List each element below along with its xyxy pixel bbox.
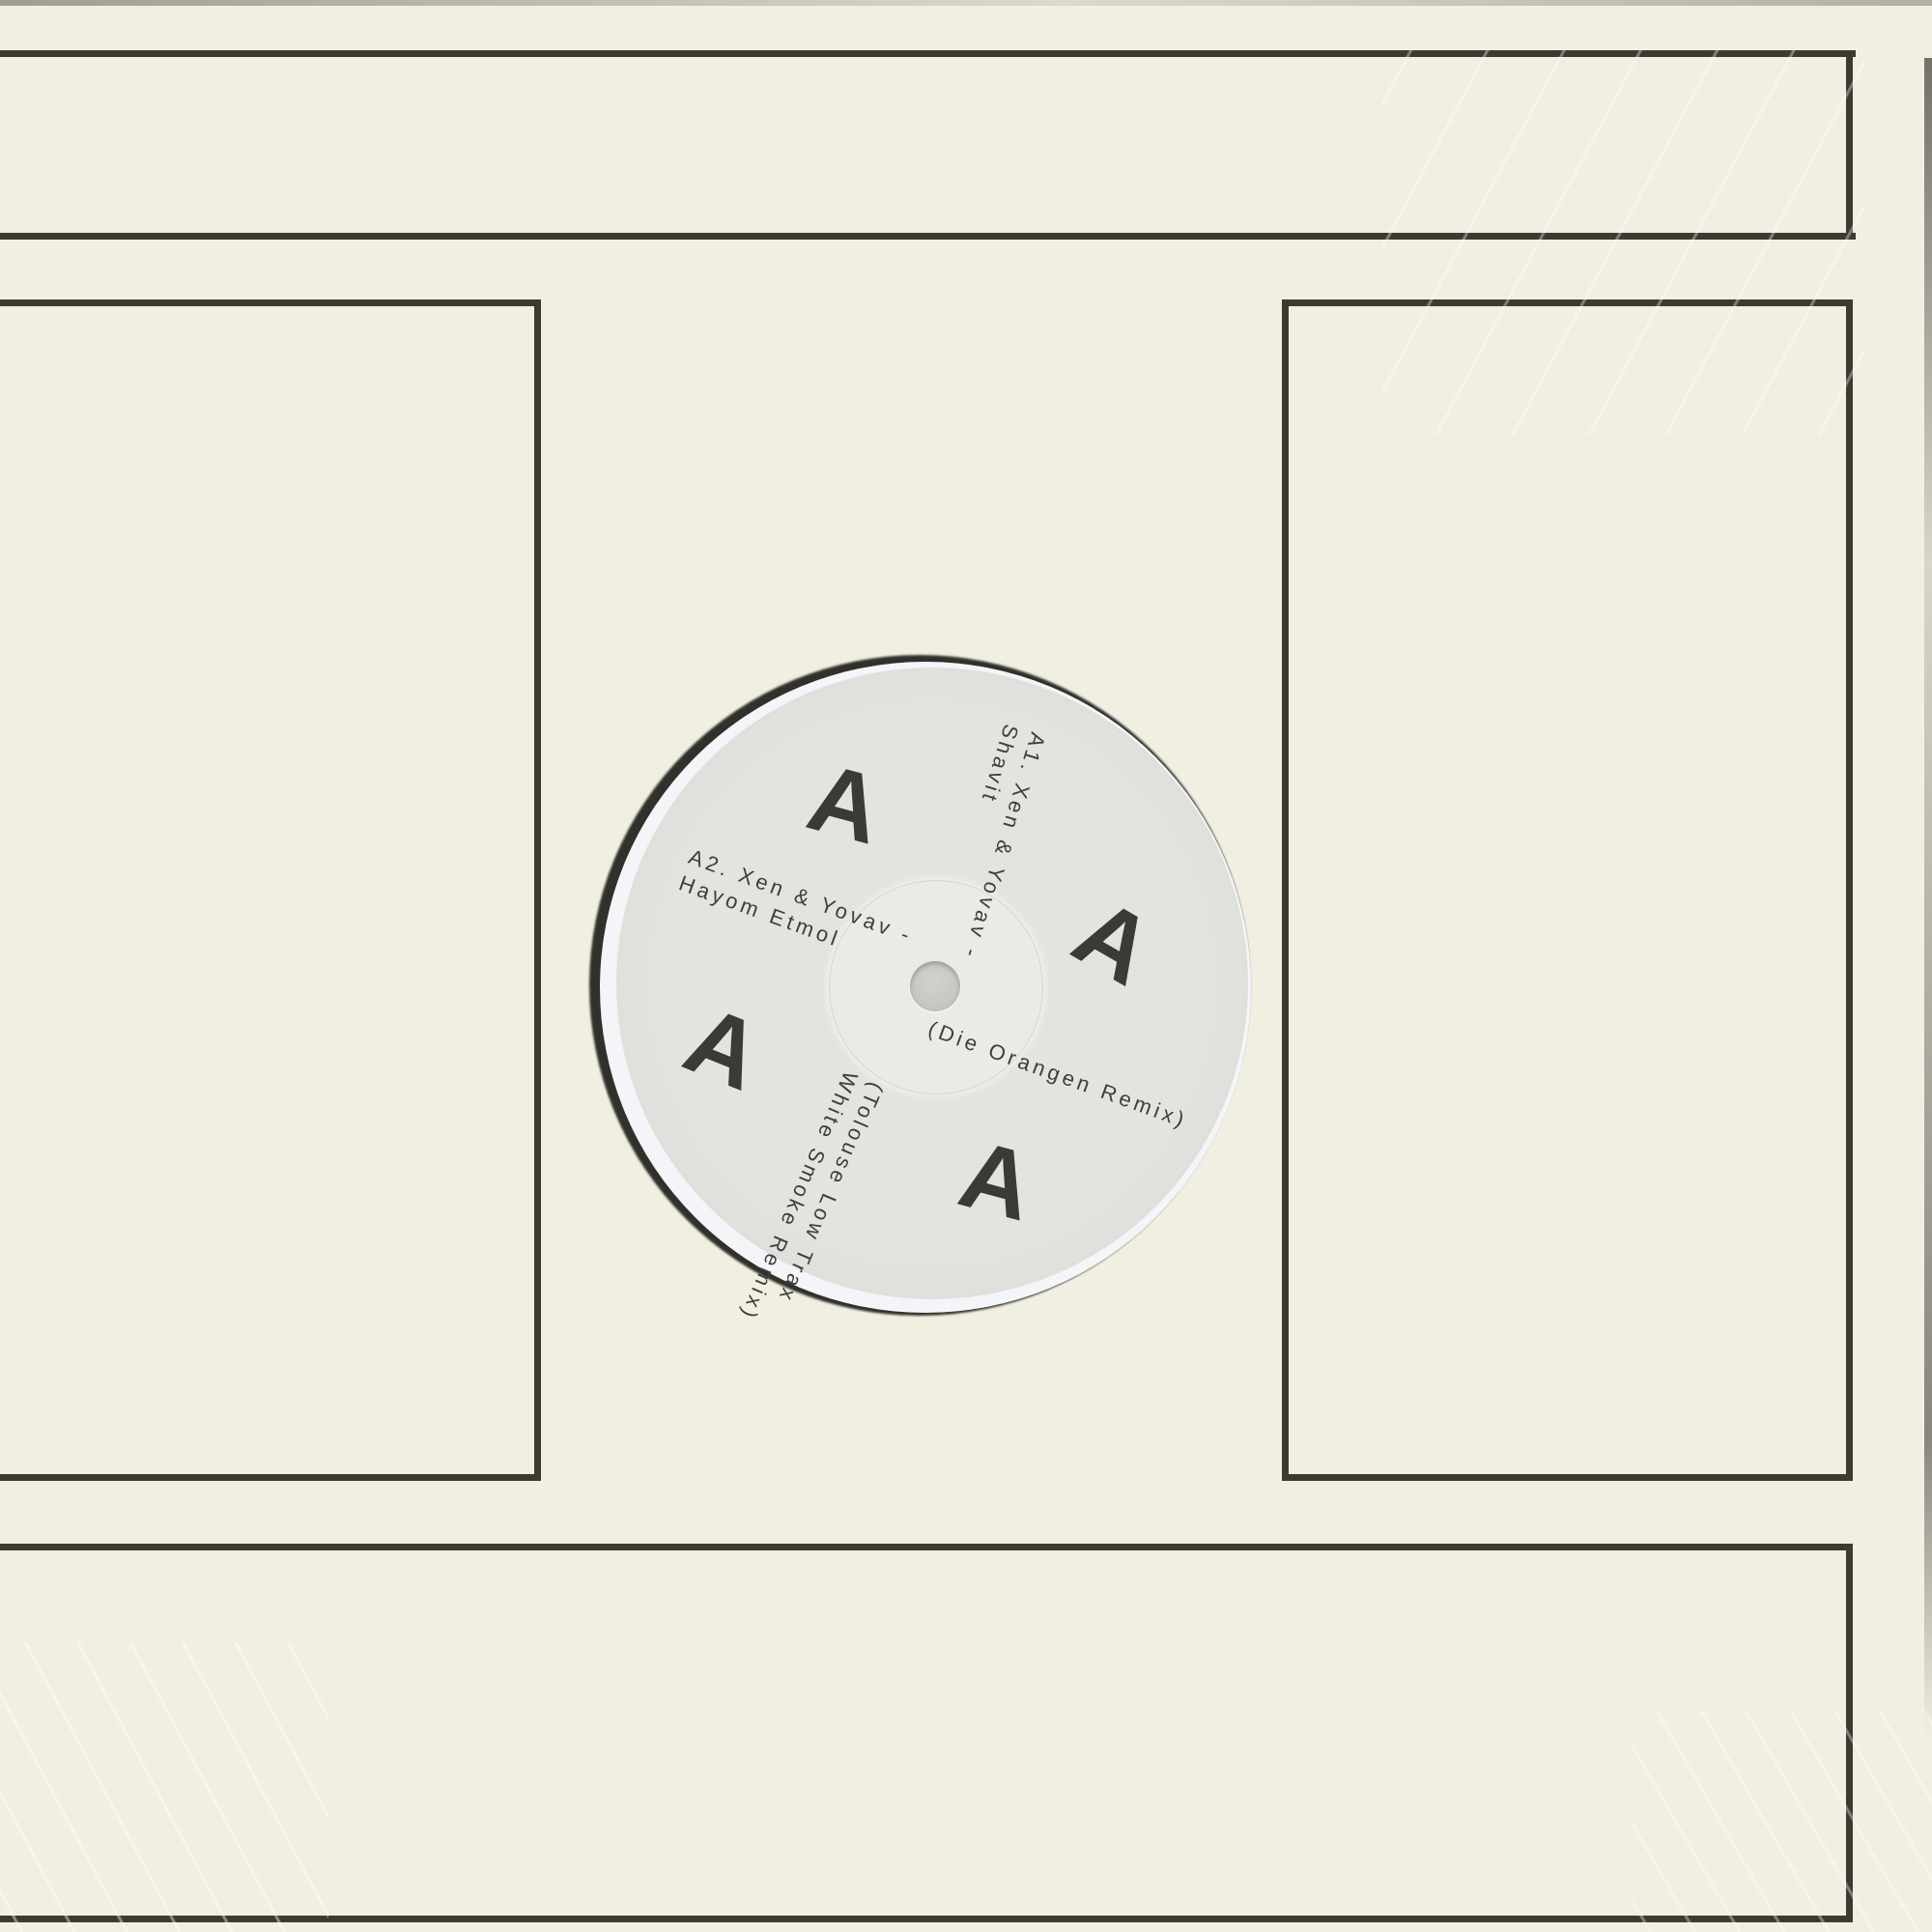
left-frame xyxy=(0,299,541,1481)
record-sleeve-scan: { "colors": { "cream": "#f1efe1", "rule"… xyxy=(0,0,1932,1932)
right-frame xyxy=(1282,299,1853,1481)
top-rule-lower xyxy=(0,233,1856,240)
scan-top-edge xyxy=(0,0,1932,6)
top-rule-upper xyxy=(0,50,1856,57)
bottom-band-frame xyxy=(0,1544,1853,1922)
spindle-hole xyxy=(910,961,960,1011)
scan-right-edge xyxy=(1924,58,1932,1739)
top-band-right-edge xyxy=(1846,50,1853,240)
